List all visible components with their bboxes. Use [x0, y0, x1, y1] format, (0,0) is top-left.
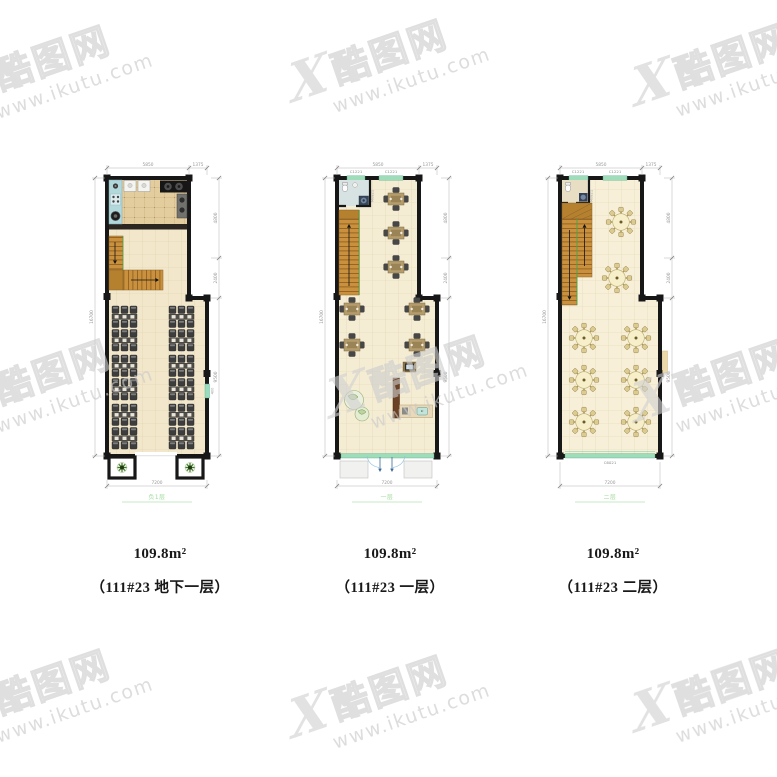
watermark: X 酷图网 www.ikutu.com — [283, 0, 542, 129]
watermark-brand: 酷图网 — [0, 22, 116, 98]
round-table — [569, 407, 599, 437]
toilet-icon — [342, 182, 347, 191]
watermark: X 酷图网 www.ikutu.com — [0, 613, 204, 759]
svg-text:16700: 16700 — [89, 310, 95, 324]
svg-text:9500: 9500 — [213, 371, 219, 382]
bathroom — [562, 180, 589, 203]
svg-text:1375: 1375 — [423, 162, 434, 168]
sheet: { "watermark": { "mark": "X", "brand": "… — [0, 0, 777, 777]
bathroom — [339, 180, 370, 206]
unit-name-label: （111#23 地下一层） — [65, 576, 255, 597]
svg-text:4800: 4800 — [666, 212, 672, 223]
kitchen-counter-bar — [109, 224, 187, 230]
svg-text:C1221: C1221 — [385, 169, 398, 174]
svg-text:4800: 4800 — [213, 212, 219, 223]
watermark-url: www.ikutu.com — [673, 31, 777, 122]
watermark-brand: 酷图网 — [327, 16, 453, 92]
watermark: X 酷图网 www.ikutu.com — [283, 619, 542, 765]
entrance-doors — [340, 454, 434, 478]
floor-caption: 二层 — [575, 494, 645, 502]
watermark-brand: 酷图网 — [327, 652, 453, 728]
watermark-url: www.ikutu.com — [0, 33, 204, 124]
svg-text:4800: 4800 — [443, 212, 449, 223]
watermark: X 酷图网 www.ikutu.com — [626, 0, 777, 133]
watermark-url: www.ikutu.com — [0, 657, 204, 748]
side-window — [205, 384, 210, 398]
watermark-brand: 酷图网 — [670, 20, 777, 96]
round-table — [621, 323, 651, 353]
plant-icon — [117, 463, 127, 473]
floor-caption: 一层 — [352, 494, 422, 502]
door-label: M0821 — [590, 190, 594, 202]
svg-text:7200: 7200 — [382, 480, 393, 486]
svg-text:二层: 二层 — [604, 494, 617, 501]
svg-text:C1221: C1221 — [609, 169, 622, 174]
floorplan-second-floor-svg: C1221 C1221 M0821 C6021 — [518, 138, 708, 518]
round-table — [569, 323, 599, 353]
staircase — [339, 210, 359, 295]
watermark-brand: 酷图网 — [670, 646, 777, 722]
floorplan-first-floor: C1221 C1221 M0821 — [295, 138, 485, 597]
floorplan-basement-svg: 400 5850 1375 4800 2400 9500 16700 7200 … — [65, 138, 255, 518]
stove — [160, 181, 187, 193]
svg-text:7200: 7200 — [605, 480, 616, 486]
door-label: M0821 — [371, 190, 375, 202]
watermark: X 酷图网 www.ikutu.com — [626, 613, 777, 759]
side-window-dim: 400 — [211, 387, 215, 395]
ikutu-logo-icon: X — [630, 54, 674, 112]
svg-text:5850: 5850 — [373, 162, 384, 168]
floorplan-basement: 400 5850 1375 4800 2400 9500 16700 7200 … — [65, 138, 255, 597]
svg-text:9500: 9500 — [666, 371, 672, 382]
svg-text:2400: 2400 — [666, 272, 672, 283]
ikutu-logo-icon: X — [287, 50, 331, 108]
watermark-url: www.ikutu.com — [330, 663, 541, 754]
watermark-url: www.ikutu.com — [673, 657, 777, 748]
floorplan-second-floor: C1221 C1221 M0821 C6021 — [518, 138, 708, 597]
ikutu-logo-icon: X — [630, 680, 674, 738]
svg-text:16700: 16700 — [542, 310, 548, 324]
svg-text:C1221: C1221 — [572, 169, 585, 174]
unit-name-label: （111#23 一层） — [295, 576, 485, 597]
toilet-icon — [565, 182, 570, 191]
svg-text:负1层: 负1层 — [148, 493, 165, 501]
entry-stoop — [404, 461, 432, 478]
entry-stoop — [340, 461, 368, 478]
svg-text:5850: 5850 — [143, 162, 154, 168]
planter-left — [109, 457, 135, 478]
svg-text:C1221: C1221 — [350, 169, 363, 174]
svg-text:16700: 16700 — [319, 310, 325, 324]
svg-text:1375: 1375 — [646, 162, 657, 168]
watermark-url: www.ikutu.com — [330, 27, 541, 118]
area-label: 109.8m² — [65, 546, 255, 563]
svg-text:一层: 一层 — [381, 494, 394, 501]
area-label: 109.8m² — [295, 546, 485, 563]
plant-icon — [185, 463, 195, 473]
svg-text:5850: 5850 — [596, 162, 607, 168]
svg-text:9500: 9500 — [443, 371, 449, 382]
ikutu-logo-icon: X — [287, 686, 331, 744]
floorplan-first-floor-svg: C1221 C1221 M0821 — [295, 138, 485, 518]
planter-right — [177, 457, 203, 478]
exterior-unit — [663, 351, 668, 373]
round-table — [606, 207, 636, 237]
round-table — [602, 263, 632, 293]
svg-text:C6021: C6021 — [604, 460, 617, 465]
svg-text:1375: 1375 — [193, 162, 204, 168]
round-table — [569, 365, 599, 395]
watermark-brand: 酷图网 — [0, 646, 116, 722]
area-label: 109.8m² — [518, 546, 708, 563]
unit-name-label: （111#23 二层） — [518, 576, 708, 597]
watermark: X 酷图网 www.ikutu.com — [0, 0, 204, 135]
floor-caption: 负1层 — [122, 493, 192, 502]
svg-text:7200: 7200 — [152, 480, 163, 486]
round-table — [621, 407, 651, 437]
sink-icon — [353, 183, 358, 188]
round-table — [621, 365, 651, 395]
kitchen-area — [109, 180, 187, 230]
svg-text:2400: 2400 — [443, 272, 449, 283]
bottom-window: C6021 — [565, 452, 655, 466]
svg-text:2400: 2400 — [213, 272, 219, 283]
